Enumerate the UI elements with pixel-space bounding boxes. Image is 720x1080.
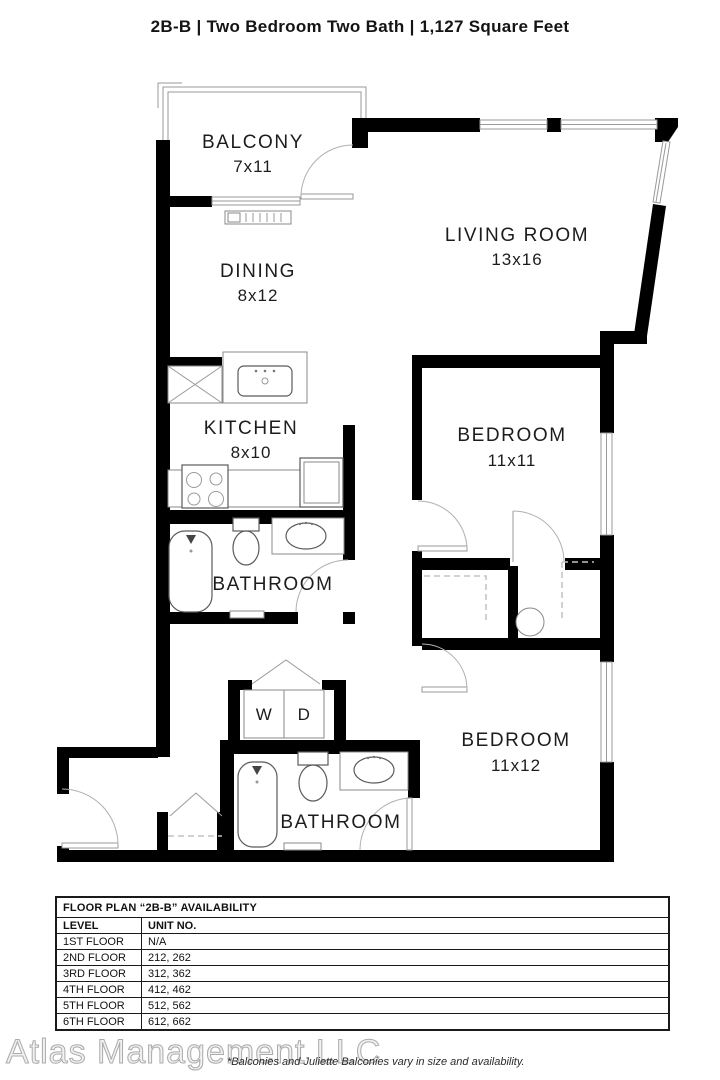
room-dims-kitchen: 8x10 [231, 443, 272, 462]
bedroom2-window [601, 662, 612, 762]
room-label-bathroom1: BATHROOM [212, 574, 333, 595]
water-heater [516, 608, 544, 636]
room-label-balcony: BALCONY [202, 132, 304, 153]
table-row: 6TH FLOOR 612, 662 [57, 1014, 668, 1030]
toilet-bowl [233, 531, 259, 565]
table-row: 5TH FLOOR 512, 562 [57, 998, 668, 1014]
column-header-unit-no: UNIT NO. [142, 918, 669, 934]
level-cell: 5TH FLOOR [57, 998, 142, 1014]
room-label-kitchen: KITCHEN [204, 418, 299, 439]
bedroom2-door [422, 644, 467, 692]
baseboard-heater [225, 211, 291, 224]
table-header-row: LEVEL UNIT NO. [57, 918, 668, 934]
room-label-bedroom1: BEDROOM [457, 425, 566, 446]
level-cell: 6TH FLOOR [57, 1014, 142, 1030]
wd-bifold-door [252, 660, 320, 684]
room-dims-balcony: 7x11 [233, 157, 273, 176]
unit-cell: 612, 662 [142, 1014, 669, 1030]
toilet-tank [298, 752, 328, 765]
washer-dryer: W D [244, 690, 324, 738]
sink-basin [354, 757, 394, 783]
toilet-bowl [299, 765, 327, 801]
unit-cell: 312, 362 [142, 966, 669, 982]
table-row: 1ST FLOOR N/A [57, 934, 668, 950]
washer-label: W [256, 705, 273, 724]
floor-plan-page: 2B-B | Two Bedroom Two Bath | 1,127 Squa… [0, 0, 720, 1080]
room-label-dining: DINING [220, 261, 296, 282]
unit-cell: 212, 262 [142, 950, 669, 966]
room-dims-dining: 8x12 [238, 286, 279, 305]
column-header-level: LEVEL [57, 918, 142, 934]
table-row: 2ND FLOOR 212, 262 [57, 950, 668, 966]
room-label-living-room: LIVING ROOM [445, 225, 589, 246]
availability-table-title: FLOOR PLAN “2B-B” AVAILABILITY [57, 898, 668, 918]
bedroom1-door [418, 501, 467, 551]
table-row: 4TH FLOOR 412, 462 [57, 982, 668, 998]
level-cell: 4TH FLOOR [57, 982, 142, 998]
dining-window [212, 197, 300, 205]
living-room-windows [480, 120, 670, 203]
level-cell: 1ST FLOOR [57, 934, 142, 950]
dryer-label: D [298, 705, 311, 724]
unit-cell: N/A [142, 934, 669, 950]
room-label-bedroom2: BEDROOM [461, 730, 570, 751]
bedroom1-window [601, 433, 612, 535]
unit-cell: 412, 462 [142, 982, 669, 998]
sink-basin [286, 523, 326, 549]
bathroom1-fixtures [169, 518, 344, 618]
bathroom2-fixtures [238, 752, 408, 850]
floor-plan: W D BALCONY 7x11 LIVING ROOM 13x16 DININ… [0, 0, 720, 880]
entry-closet-bifold-door [170, 793, 222, 816]
room-dims-living-room: 13x16 [491, 250, 542, 269]
entry-door [62, 789, 118, 848]
availability-table: FLOOR PLAN “2B-B” AVAILABILITY LEVEL UNI… [55, 896, 670, 1031]
bathtub [238, 762, 277, 847]
disclaimer-text: *Balconies and Juliette Balconies vary i… [227, 1056, 525, 1068]
bedroom1-closet-door [513, 511, 564, 562]
level-cell: 3RD FLOOR [57, 966, 142, 982]
table-row: 3RD FLOOR 312, 362 [57, 966, 668, 982]
level-cell: 2ND FLOOR [57, 950, 142, 966]
room-dims-bedroom1: 11x11 [488, 451, 537, 470]
toilet-tank [233, 518, 259, 531]
room-dims-bedroom2: 11x12 [491, 756, 541, 775]
bathtub [169, 531, 212, 612]
balcony-door [301, 145, 353, 199]
room-label-bathroom2: BATHROOM [280, 812, 401, 833]
unit-cell: 512, 562 [142, 998, 669, 1014]
